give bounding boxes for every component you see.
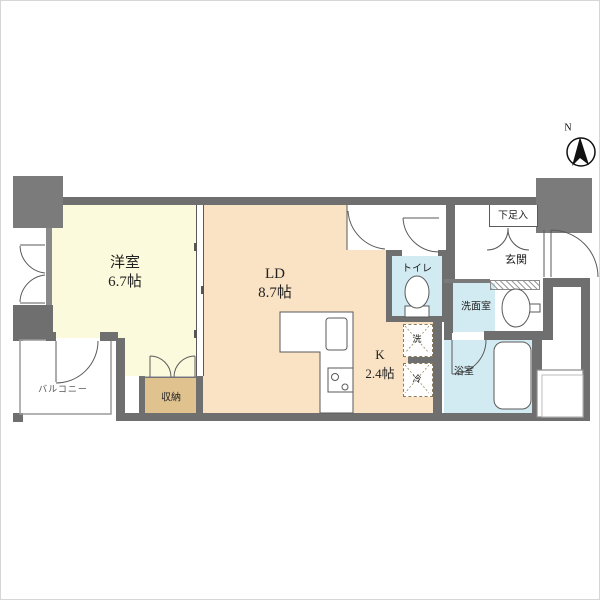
western-room-label: 洋室 [110,255,140,272]
balcony-label: バルコニー [38,385,88,395]
floor-plan: 洋室 6.7帖 LD 8.7帖 K 2.4帖 トイレ 洗面室 浴室 玄関 下足入… [0,0,600,600]
washer-space-label: 洗 [412,335,421,345]
living-dining-size: 8.7帖 [258,285,292,302]
shoe-cabinet-label: 下足入 [498,211,528,222]
balcony-door-arc [56,341,98,383]
toilet-door-arc [403,218,439,252]
toilet-label: トイレ [402,264,432,275]
ld-door-arc [348,211,385,249]
shoe-door-arc-left [487,228,508,250]
entrance-door-arc [551,230,598,277]
entrance-label: 玄関 [505,254,527,266]
partition-nub-3 [194,330,197,338]
window-casement-leaves [20,245,45,303]
north-label: N [564,123,571,134]
toilet-bowl [405,276,429,308]
closet-door-leaves [150,356,195,377]
kitchen-sink [326,318,347,350]
partition-nub-1 [194,243,197,251]
window-casement-arc-bottom [20,275,45,302]
stove [328,368,353,392]
outside-service-box [537,370,583,417]
washroom-label: 洗面室 [461,302,491,313]
bathtub [494,342,531,409]
closet-door-arc-left [150,356,171,377]
closet-label: 収納 [161,393,181,404]
refrigerator-space-label: 冷 [412,375,421,385]
window-casement-arc-top [20,246,45,273]
bathroom-label: 浴室 [454,367,474,378]
linework-overlay [0,0,600,600]
partition-nub-2 [201,286,204,294]
kitchen-label: K [375,348,384,362]
shoe-door-arc-right [508,228,529,250]
living-dining-label: LD [265,266,285,283]
kitchen-size: 2.4帖 [365,367,394,381]
compass-icon [567,137,595,166]
wash-basin [502,289,530,327]
closet-door-arc-right [174,356,195,377]
western-room-size: 6.7帖 [108,274,142,291]
